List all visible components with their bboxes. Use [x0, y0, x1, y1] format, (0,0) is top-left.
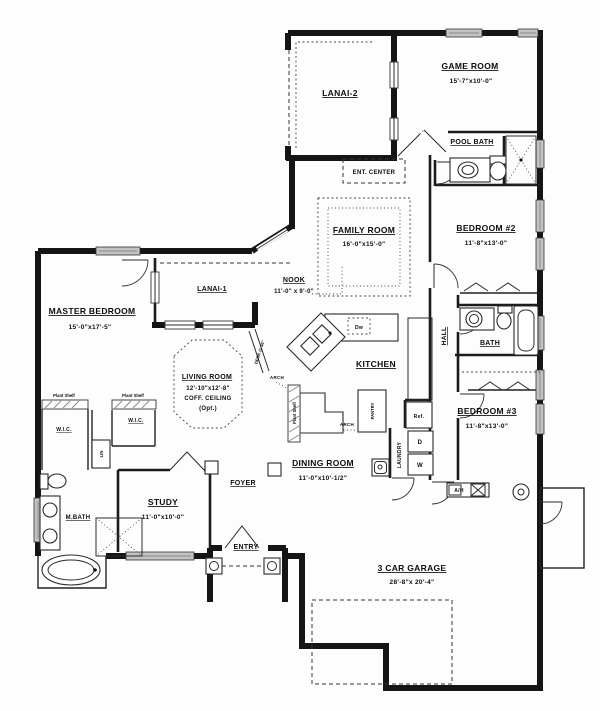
plant-shelf-note-1: Plant Shelf [53, 393, 75, 398]
garage-equipment [447, 483, 584, 568]
note-living-2: (Opt.) [199, 406, 217, 412]
label-entry: ENTRY [234, 544, 259, 551]
label-game: GAME ROOM [441, 61, 498, 71]
linen-label: LIN [99, 451, 104, 458]
dims-study: 11'-0"x10'-0" [142, 514, 184, 521]
plant-shelf-note-2: Plant Shelf [122, 393, 144, 398]
wic-plant-shelves [42, 400, 156, 409]
floor-plan: LANAI-2 GAME ROOM 15'-7"x10'-0" POOL BAT… [0, 0, 600, 711]
label-dining: DINING ROOM [292, 458, 354, 468]
ref-label: Ref. [414, 414, 425, 420]
label-lanai1: LANAI-1 [197, 286, 227, 293]
dims-bed2: 11'-8"x13'-0" [465, 240, 507, 247]
master-bath-fixtures [38, 440, 142, 588]
garage-bay-outline [312, 600, 452, 684]
washer-label: W [417, 463, 423, 469]
label-lanai2: LANAI-2 [322, 88, 358, 98]
arch-note-2: ARCH [270, 375, 284, 380]
air-handler-label: A/H [454, 488, 464, 494]
label-entcenter: ENT. CENTER [353, 170, 396, 176]
label-family: FAMILY ROOM [333, 225, 395, 235]
label-poolbath: POOL BATH [450, 139, 493, 146]
label-master: MASTER BEDROOM [49, 306, 136, 316]
dryer-label: D [418, 440, 423, 446]
living-coffered-ceiling [174, 340, 242, 428]
plant-shelf-note-3: Plant Shelf [292, 402, 297, 424]
dims-nook: 11'-0" x 9'-0" [274, 289, 314, 295]
toilet [48, 474, 66, 488]
counter [408, 318, 432, 400]
entry-columns [205, 461, 281, 574]
dims-bed3: 11'-8"x13'-0" [466, 423, 508, 430]
water-heater [513, 484, 529, 500]
toilet [490, 162, 506, 180]
label-garage: 3 CAR GARAGE [378, 563, 447, 573]
bath-fixtures [460, 306, 538, 355]
dims-living: 12'-10"x12'-8" [186, 386, 229, 392]
label-mbath: M.BATH [66, 515, 91, 521]
label-foyer: FOYER [230, 480, 256, 487]
label-wic1: W.I.C. [56, 427, 72, 433]
study-double-door [170, 452, 204, 470]
dims-game: 15'-7"x10'-0" [450, 78, 493, 85]
dw-label: Dw [355, 325, 363, 331]
label-bath: BATH [480, 340, 500, 347]
dims-family: 16'-0"x15'-0" [343, 241, 386, 248]
garage-side-stoop [540, 488, 584, 568]
toilet [497, 313, 511, 329]
label-living: LIVING ROOM [182, 374, 232, 381]
label-wic2: W.I.C. [128, 418, 144, 424]
label-nook: NOOK [283, 277, 305, 284]
note-living-1: COFF. CEILING [184, 396, 231, 402]
label-kitchen: KITCHEN [356, 359, 396, 369]
label-bed2: BEDROOM #2 [456, 223, 515, 233]
label-laundry: LAUNDRY [397, 441, 403, 468]
dining-buffet [300, 393, 343, 433]
arch-note-1: ARCH [340, 422, 354, 427]
label-study: STUDY [148, 497, 178, 507]
dims-master: 15'-0"x17'-5" [69, 324, 112, 331]
dims-garage: 28'-8"x 20'-4" [390, 579, 435, 586]
pantry-label: PANTRY [370, 402, 375, 419]
label-bed3: BEDROOM #3 [457, 406, 516, 416]
label-hall: HALL [441, 327, 448, 346]
dims-dining: 11'-0"x10'-1/2" [299, 475, 347, 482]
